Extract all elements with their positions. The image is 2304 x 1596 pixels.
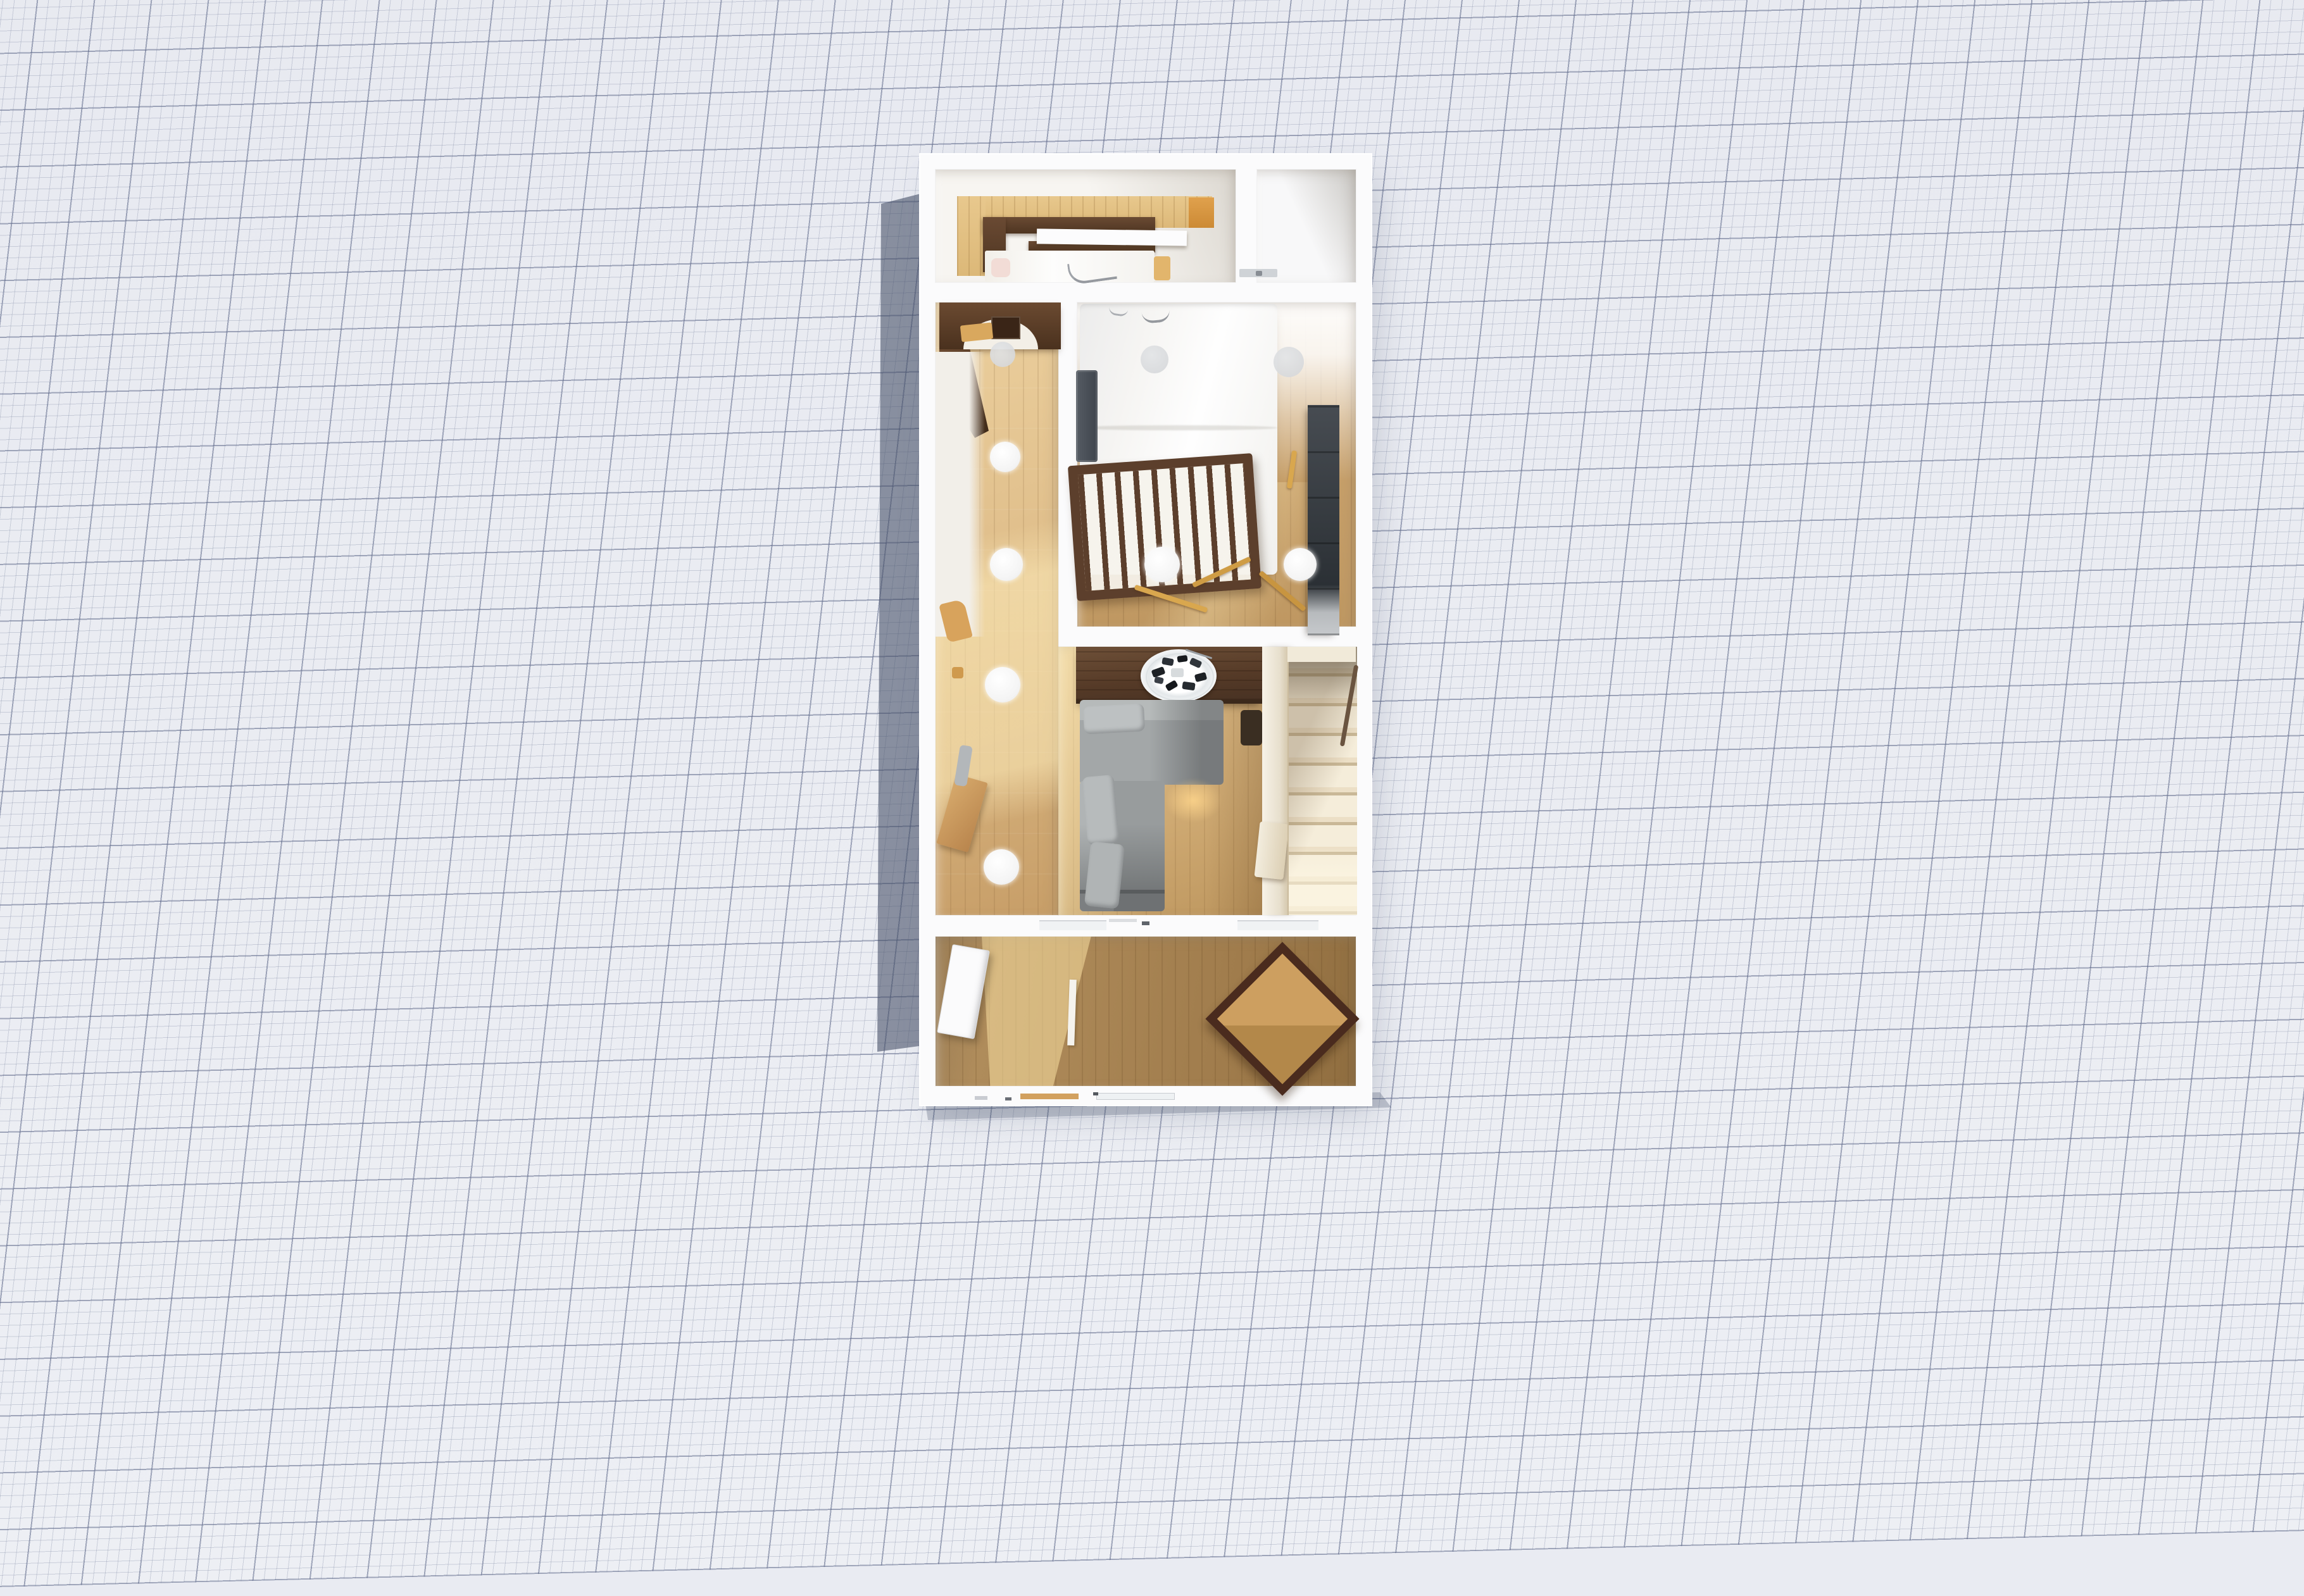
spotlight[interactable] [990,548,1023,581]
sofa-pillow [1083,704,1145,735]
pink-cushion [991,258,1010,277]
wall-mark [1093,1092,1098,1095]
wardrobe[interactable] [1308,405,1339,635]
dining-table[interactable] [1076,647,1262,704]
duvet-fold [1080,425,1277,430]
warm-light-patch [1165,778,1222,823]
sofa-chaise-shadow [1149,700,1224,785]
window-sill [1039,920,1106,930]
sushi-platter[interactable] [1141,649,1217,702]
floating-shelf[interactable] [1037,228,1187,246]
sofa-pillow [1084,841,1125,909]
spotlight[interactable] [1144,547,1180,582]
sushi-piece [1182,682,1195,691]
spotlight[interactable] [984,849,1019,885]
spotlight-dim[interactable] [1274,347,1304,377]
bedside-ladder[interactable] [1076,370,1098,462]
hall-wall-face [936,352,985,637]
3d-viewport[interactable] [0,0,2304,1296]
spotlight[interactable] [1284,548,1317,581]
sofa-pillow [1082,775,1119,845]
wall-mark [1005,1097,1011,1100]
pine-paneling-end [1189,197,1214,228]
hall-basket-small [952,667,963,678]
tan-cushion [1154,256,1170,280]
spotlight[interactable] [985,667,1020,702]
wall-mark [1109,919,1137,922]
staircase[interactable] [1287,647,1357,915]
wall-mark [1142,921,1149,925]
dark-gap [1241,710,1262,745]
room-closet[interactable] [1257,170,1356,282]
spotlight[interactable] [990,442,1020,472]
railing-end-post [1255,821,1289,880]
pine-paneling-left[interactable] [957,196,986,276]
closet-fixture [1256,271,1262,276]
bottom-sill-white [1096,1093,1175,1100]
bottom-sill-wood [1020,1094,1079,1099]
sushi-piece-light [1171,668,1184,677]
stair-landing-edge [1287,647,1356,662]
spotlight-dim[interactable] [990,342,1015,367]
floorplan-building[interactable] [919,153,1372,1106]
hall-shelf[interactable] [960,322,993,342]
wall-mark [975,1096,987,1100]
wall-frame[interactable] [991,316,1020,339]
spotlight-dim[interactable] [1141,346,1168,373]
window-sill [1237,920,1318,930]
